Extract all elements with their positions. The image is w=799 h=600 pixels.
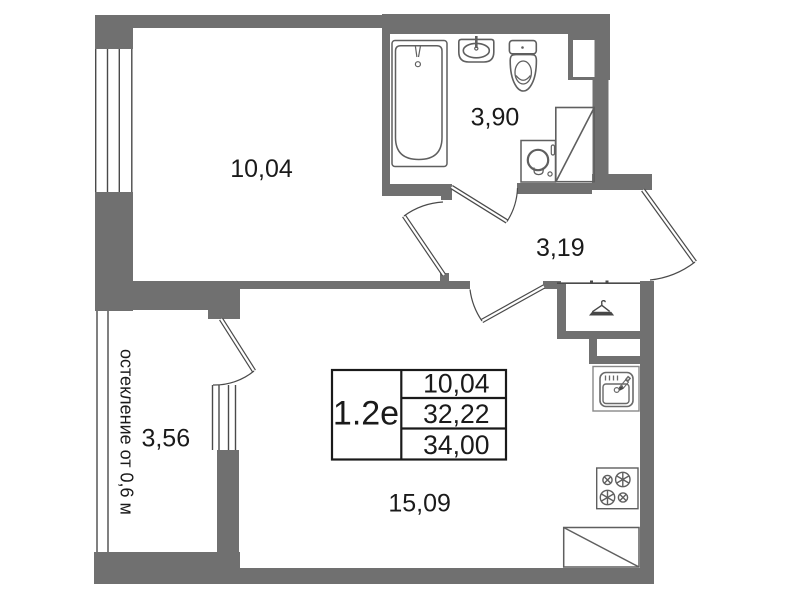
svg-text:10,04: 10,04 xyxy=(230,155,293,183)
svg-text:остекление от 0,6 м: остекление от 0,6 м xyxy=(117,349,137,515)
svg-text:3,56: 3,56 xyxy=(141,425,190,453)
svg-text:32,22: 32,22 xyxy=(423,399,489,429)
svg-text:3,19: 3,19 xyxy=(536,234,585,262)
svg-text:15,09: 15,09 xyxy=(388,490,451,518)
svg-text:1.2е: 1.2е xyxy=(333,395,399,433)
svg-text:3,90: 3,90 xyxy=(471,103,520,131)
svg-text:10,04: 10,04 xyxy=(423,369,489,399)
svg-text:34,00: 34,00 xyxy=(423,430,489,460)
